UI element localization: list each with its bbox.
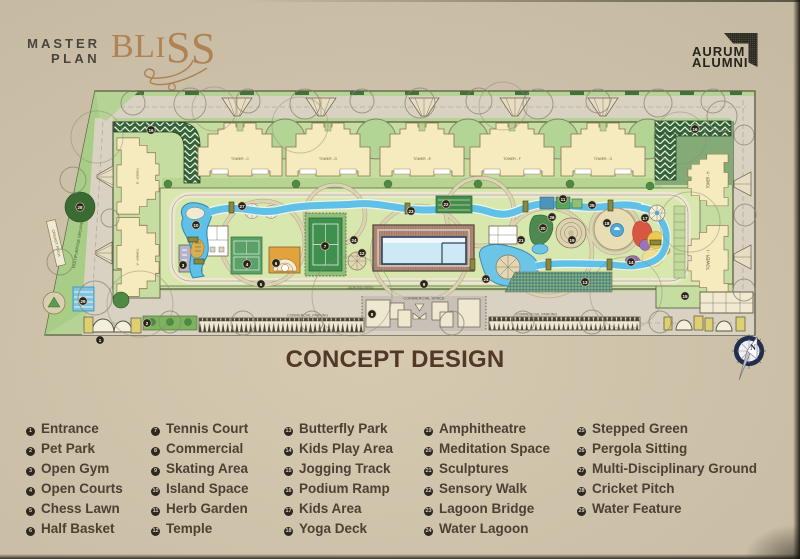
svg-text:27: 27	[239, 204, 245, 209]
svg-text:10: 10	[193, 223, 199, 228]
svg-text:COMMERCIAL PARKING: COMMERCIAL PARKING	[516, 313, 557, 317]
svg-text:23: 23	[408, 209, 414, 214]
svg-text:20: 20	[540, 226, 546, 231]
svg-text:24: 24	[351, 238, 357, 243]
svg-text:11: 11	[561, 197, 566, 202]
svg-text:21: 21	[518, 238, 524, 243]
svg-text:26: 26	[549, 215, 555, 220]
svg-text:TOWER - D: TOWER - D	[319, 157, 338, 161]
svg-text:14: 14	[628, 260, 634, 265]
svg-text:TOWER - B: TOWER - B	[135, 168, 139, 185]
svg-text:TOWER - G: TOWER - G	[594, 157, 613, 161]
svg-text:19: 19	[569, 238, 575, 243]
svg-text:29: 29	[80, 299, 86, 304]
svg-text:TOWER - I: TOWER - I	[706, 250, 711, 270]
svg-text:16: 16	[148, 128, 154, 133]
svg-text:22: 22	[443, 202, 449, 207]
svg-text:TOWER - F: TOWER - F	[503, 157, 521, 161]
svg-text:TOWER - C: TOWER - C	[231, 157, 250, 161]
svg-text:COMMERCIAL SPACE: COMMERCIAL SPACE	[403, 296, 445, 301]
svg-text:18: 18	[604, 221, 610, 226]
svg-text:TOWER - A: TOWER - A	[135, 249, 139, 267]
svg-text:24: 24	[483, 277, 489, 282]
svg-text:SEATING RING: SEATING RING	[348, 286, 374, 290]
svg-text:TOWER - H: TOWER - H	[706, 171, 710, 188]
svg-text:17: 17	[642, 216, 648, 221]
svg-text:TOWER - E: TOWER - E	[413, 157, 432, 161]
svg-text:16: 16	[692, 127, 698, 132]
svg-text:13: 13	[582, 280, 588, 285]
svg-text:12: 12	[359, 251, 365, 256]
svg-text:15: 15	[682, 294, 688, 299]
svg-text:25: 25	[589, 203, 595, 208]
svg-text:COMMERCIAL PARKING: COMMERCIAL PARKING	[287, 314, 328, 318]
svg-text:28: 28	[77, 205, 83, 210]
